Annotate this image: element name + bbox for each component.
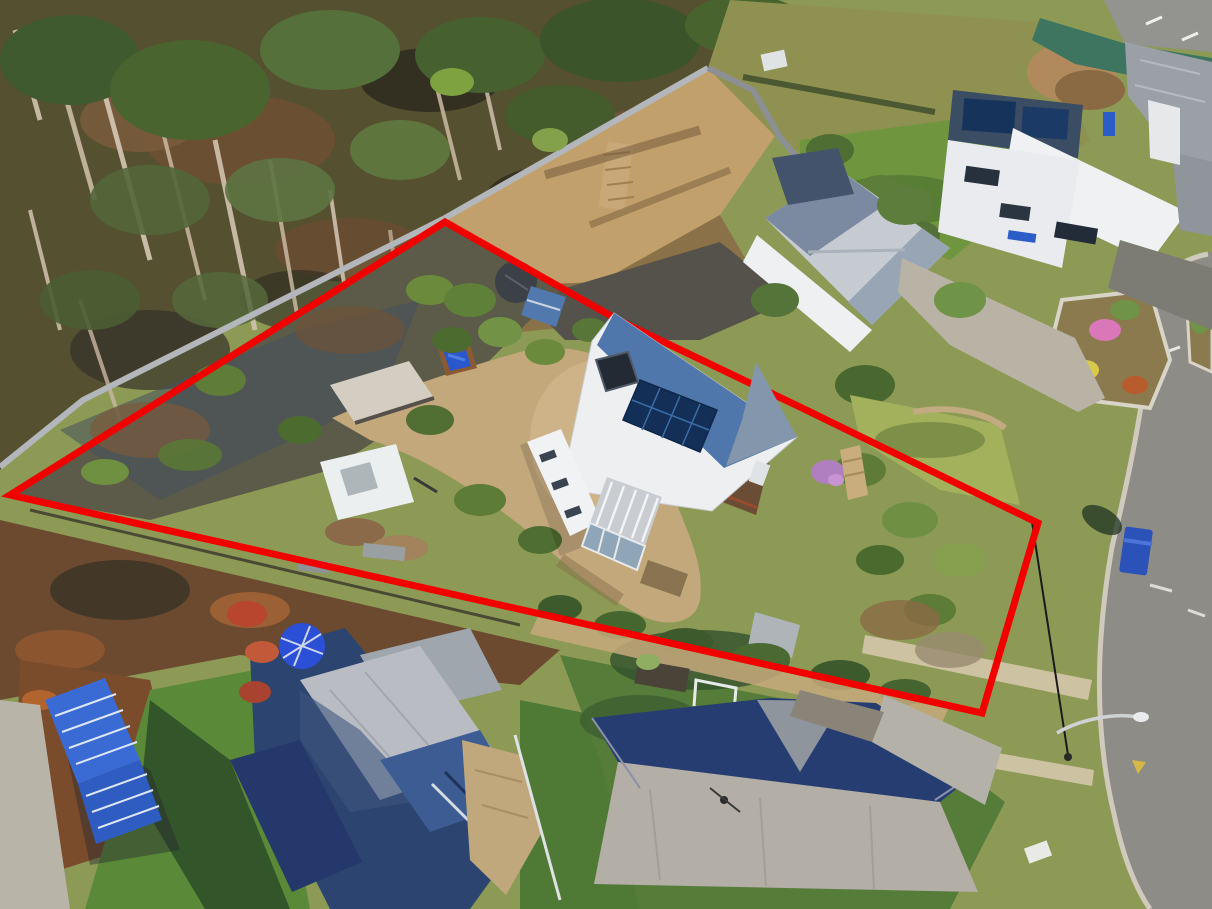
tree-canopy (260, 10, 400, 90)
neighborB-solar-panel (962, 98, 1016, 134)
tree-canopy (172, 272, 268, 328)
aerial-photograph: Bird's-eye aerial photo of a hillside re… (0, 0, 1212, 909)
east-garden-shrub (882, 502, 938, 538)
neighborNE-white-wall (1148, 100, 1180, 165)
east-garden-shrub (934, 543, 986, 577)
palm-tree (430, 68, 474, 96)
garden-island-green-shrub (1110, 300, 1140, 320)
neighborA-roof-ridge (808, 250, 905, 252)
power-pole (1064, 753, 1072, 761)
east-garden-rocks (915, 632, 985, 668)
garden-shrub (406, 405, 454, 435)
tree-canopy (540, 0, 700, 82)
streetlight-lamp (1133, 712, 1149, 722)
scrub-shrub (278, 416, 322, 444)
tree-canopy (225, 158, 335, 222)
aloe-plant (636, 654, 660, 670)
garden-shrub (432, 327, 472, 353)
red-flower-bush (239, 681, 271, 703)
scrub-brown-patch (295, 306, 405, 354)
garden-shrub (454, 484, 506, 516)
east-garden-shrub (856, 545, 904, 575)
garden-shrub (478, 317, 522, 347)
purple-flowering-highlight (828, 474, 844, 486)
scrub-shrub (194, 364, 246, 396)
scrub-greenery (158, 439, 222, 471)
red-flower-bush (245, 641, 279, 663)
garden-island-pink-shrub (1089, 319, 1121, 341)
garden-shrub (444, 283, 496, 317)
rust-dark-patch (50, 560, 190, 620)
neighborA-tree (934, 282, 986, 318)
neighborB-blue-accent (1103, 112, 1115, 136)
tree-canopy (40, 270, 140, 330)
neighborA-tree (877, 185, 933, 225)
garden-island-orange-shrub (1122, 376, 1148, 394)
neighborA-tree (751, 283, 799, 317)
neighborB-solar-panel (1021, 106, 1069, 139)
tree-canopy (350, 120, 450, 180)
scene-svg (0, 0, 1212, 909)
tree-canopy (90, 165, 210, 235)
scrub-shrub (532, 128, 568, 152)
tree-canopy (110, 40, 270, 140)
east-garden-brown (860, 600, 940, 640)
red-flower-bush (227, 601, 267, 627)
scrub-palm (81, 459, 129, 485)
garden-shrub (525, 339, 565, 365)
